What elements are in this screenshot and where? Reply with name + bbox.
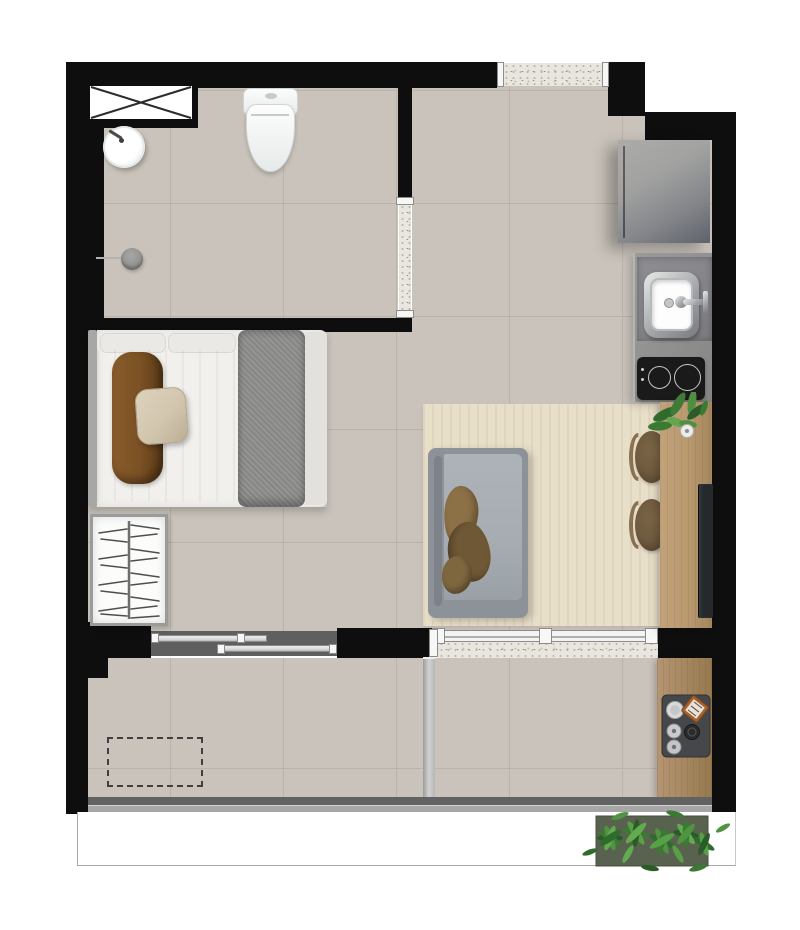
sofa	[428, 448, 528, 618]
window-handle-mid-top	[237, 633, 245, 643]
open-wardrobe	[90, 514, 168, 626]
door-jamb-cap	[429, 629, 438, 657]
shower-floor-drain	[121, 248, 143, 270]
wall-living-south-east	[658, 628, 736, 658]
bathroom-faucet-knob	[119, 138, 124, 143]
entry-threshold-frame-right	[602, 62, 609, 87]
window-handle-right	[329, 644, 337, 654]
balcony-furniture-dashed-outline	[107, 737, 203, 787]
console-potted-plant	[648, 392, 714, 450]
kitchen-sink	[644, 272, 699, 338]
wardrobe-hanger-rail	[93, 517, 165, 623]
wall-balcony-step	[88, 658, 108, 678]
kitchen-sink-drain	[664, 298, 674, 308]
entry-threshold-frame-left	[497, 62, 504, 87]
balcony-parapet-inner	[88, 797, 712, 805]
refrigerator	[618, 140, 710, 243]
kitchen-faucet-handle	[703, 291, 708, 313]
toilet-flush-button	[265, 93, 277, 99]
ventilation-shaft-x-box	[90, 86, 192, 119]
window-sash-bottom	[223, 645, 331, 652]
bed-accent-pillow-beige	[134, 386, 189, 445]
bed-runner-gray	[238, 330, 305, 507]
barbecue-grill-set	[661, 694, 711, 758]
wall-right	[712, 138, 736, 814]
sofa-backrest-edge	[434, 456, 442, 606]
balcony-partition	[423, 657, 435, 799]
wall-bathroom-east-upper	[398, 62, 412, 202]
outdoor-planter-ferns	[580, 808, 734, 876]
cooktop-control-dot-1	[641, 368, 644, 371]
bathroom-door-threshold	[399, 204, 411, 311]
window-handle-left	[151, 633, 159, 643]
double-bed	[88, 330, 327, 507]
cooktop-burner-right	[674, 364, 701, 391]
wall-left	[66, 62, 88, 814]
wall-entry-right-block	[608, 62, 645, 116]
sofa-throw-blanket	[442, 486, 494, 594]
wall-between-window-and-door	[337, 628, 433, 658]
door-handle-middle	[539, 628, 552, 644]
cooktop-control-dot-2	[641, 378, 644, 381]
window-handle-mid-bottom	[217, 644, 225, 654]
entry-threshold	[503, 63, 603, 86]
refrigerator-door-seam	[623, 146, 625, 238]
shower-arm-line	[96, 257, 123, 259]
bedroom-sliding-window	[151, 631, 337, 656]
window-sash-top	[157, 635, 267, 642]
bed-headboard	[88, 330, 97, 507]
cooktop-burner-left	[648, 366, 671, 389]
toilet	[243, 88, 300, 174]
door-handle-right	[645, 628, 658, 644]
toilet-seat-line	[251, 114, 289, 116]
wall-tv	[698, 484, 713, 618]
wall-top-right-arm	[645, 112, 736, 140]
bathroom-door-frame-bottom	[396, 310, 414, 318]
floor-plan	[0, 0, 800, 930]
bed-foot-strip	[305, 332, 327, 505]
bathroom-door-frame-top	[396, 197, 414, 205]
